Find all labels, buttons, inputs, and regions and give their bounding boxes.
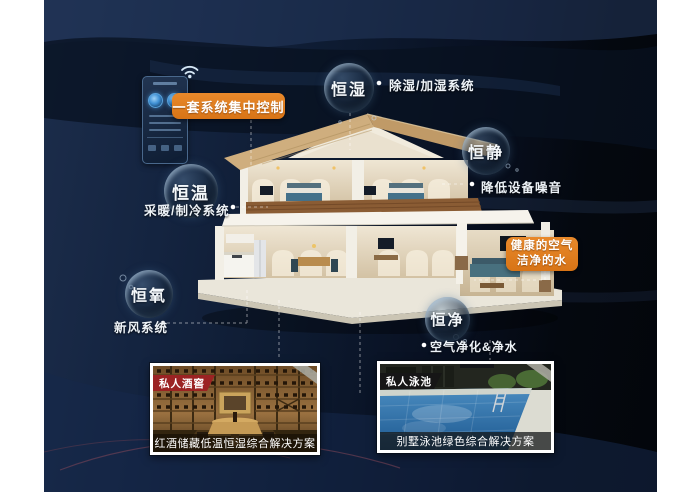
label-fresh-air-system: 新风系统 [114,317,168,336]
pool-badge: 私人泳池 [380,373,442,389]
bubble-constant-purity-label: 恒净 [430,309,464,330]
wine-cellar-badge: 私人酒窖 [153,375,215,391]
phone-key [161,145,169,151]
bubble-constant-humidity: 恒湿 [324,63,374,113]
pool-caption: 别墅泳池绿色综合解决方案 [380,432,551,450]
bubble-constant-oxygen: 恒氧 [125,270,173,318]
phone-row [149,129,181,131]
healthy-air-water-badge: 健康的空气 洁净的水 [506,237,578,271]
wifi-icon [178,56,204,80]
central-control-badge: 一套系统集中控制 [172,93,285,119]
phone-key [174,145,182,151]
bubble-constant-oxygen-label: 恒氧 [131,282,167,306]
health-badge-line1: 健康的空气 [511,239,574,254]
bubble-constant-quiet: 恒静 [462,127,510,175]
phone-dial-left [148,93,163,108]
label-air-water-purification: 空气净化&净水 [430,338,518,355]
phone-row [149,122,181,124]
label-reduce-equipment-noise: 降低设备噪音 [481,177,562,196]
phone-divider [147,137,183,138]
wine-cellar-caption: 红酒储藏低温恒湿综合解决方案 [153,434,317,452]
smart-control-panel [142,76,188,164]
label-dehumidify-humidify-system: 除湿/加湿系统 [389,75,474,94]
health-badge-line2: 洁净的水 [517,254,567,269]
phone-key [148,145,156,151]
infographic-page: 一套系统集中控制 健康的空气 洁净的水 恒湿 恒静 恒温 恒氧 恒净 除湿/加湿… [0,0,700,497]
label-heating-cooling-system: 采暖/制冷系统 [144,200,229,219]
central-control-badge-label: 一套系统集中控制 [172,97,284,116]
pool-photo: 私人泳池 别墅泳池绿色综合解决方案 [377,361,554,453]
phone-status-bar [153,82,177,85]
bubble-constant-purity: 恒净 [425,297,470,342]
bubble-constant-quiet-label: 恒静 [468,139,504,163]
bubble-constant-humidity-label: 恒湿 [331,76,367,100]
wine-cellar-photo: 私人酒窖 红酒储藏低温恒湿综合解决方案 [150,363,320,455]
